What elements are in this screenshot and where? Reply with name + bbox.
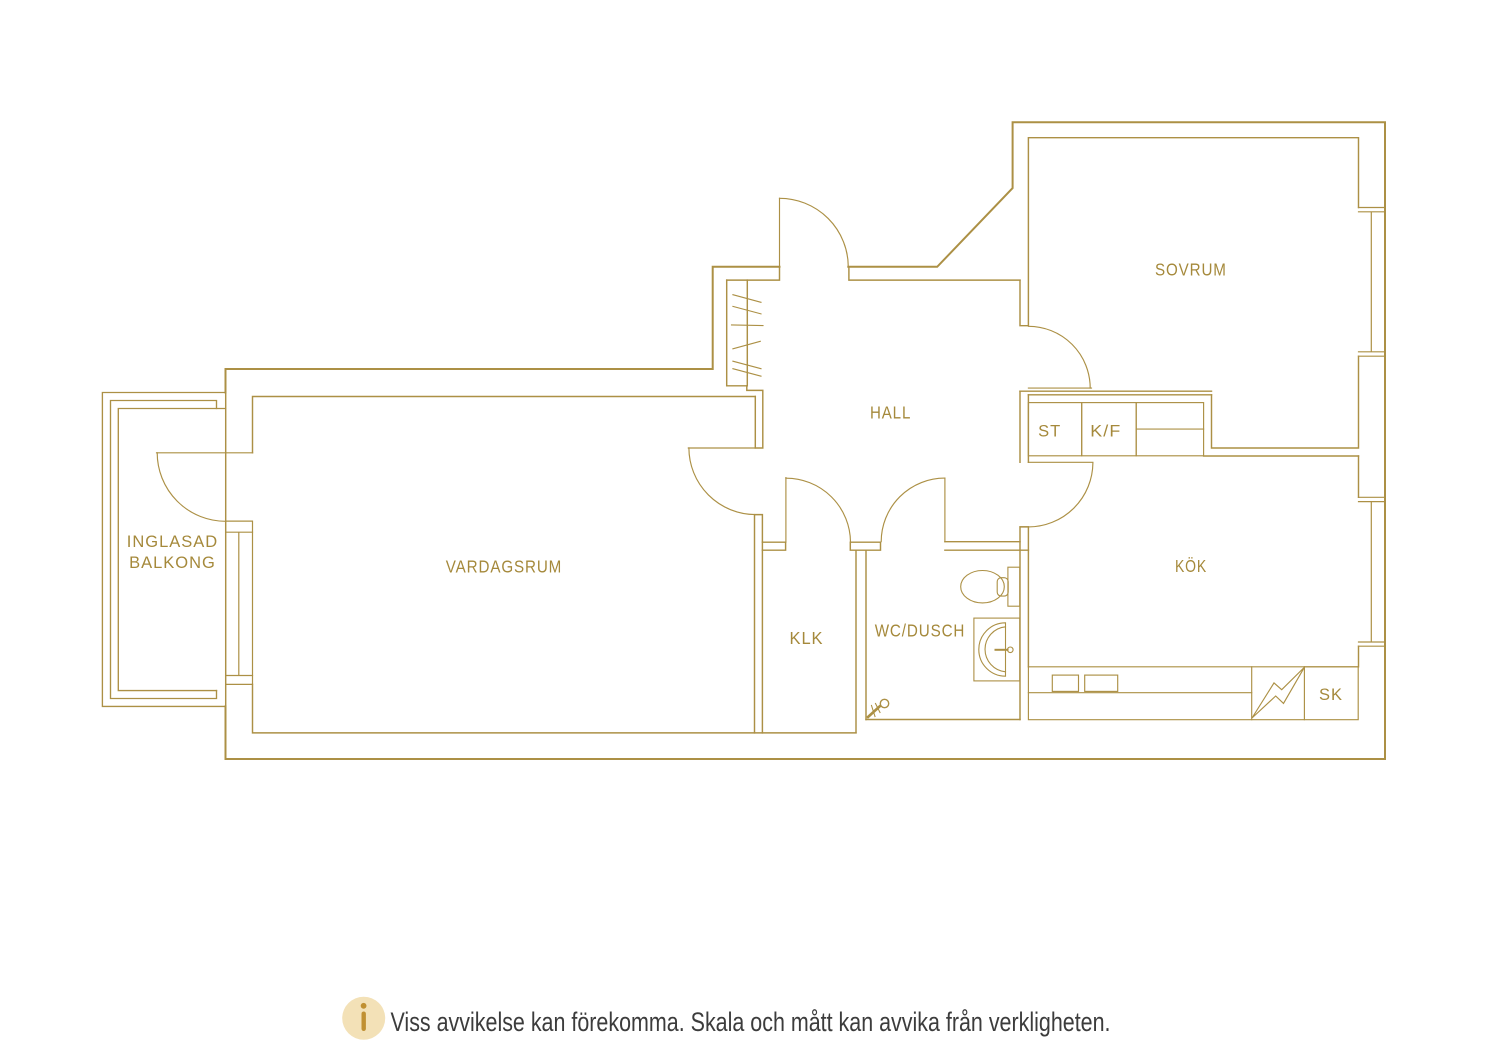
svg-text:KÖK: KÖK (1175, 556, 1207, 576)
svg-text:KLK: KLK (790, 628, 824, 648)
svg-text:SOVRUM: SOVRUM (1155, 260, 1227, 280)
svg-text:WC/DUSCH: WC/DUSCH (875, 621, 966, 641)
svg-text:K/F: K/F (1090, 423, 1121, 441)
svg-text:ST: ST (1038, 423, 1061, 441)
svg-text:Viss avvikelse kan förekomma.: Viss avvikelse kan förekomma. Skala och … (391, 1007, 1111, 1037)
svg-text:SK: SK (1319, 686, 1343, 704)
svg-text:VARDAGSRUM: VARDAGSRUM (446, 557, 562, 577)
svg-text:BALKONG: BALKONG (129, 554, 216, 572)
svg-text:INGLASAD: INGLASAD (127, 533, 218, 551)
svg-text:HALL: HALL (870, 402, 911, 422)
